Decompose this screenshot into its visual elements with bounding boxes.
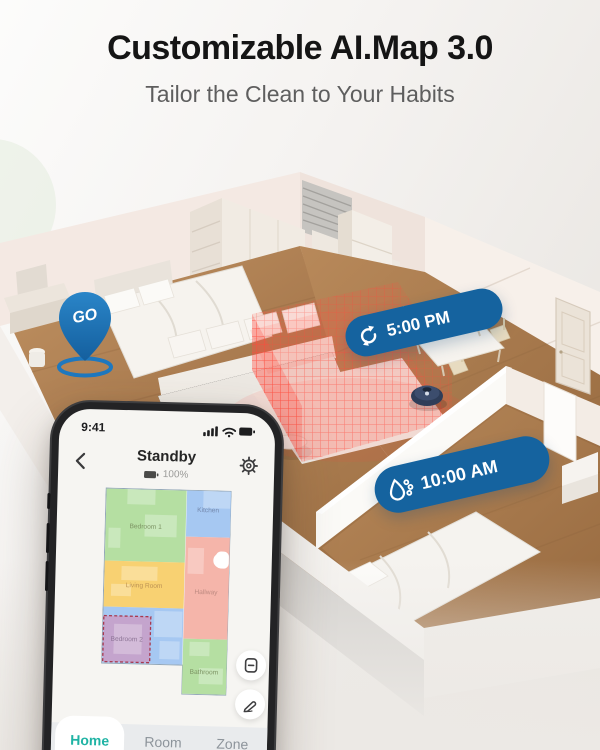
rotate-clockwise-icon [355,322,381,348]
map-label-hallway: Hallway [194,589,218,597]
page-subtitle: Tailor the Clean to Your Habits [0,81,600,108]
map-label-bedroom1: Bedroom 1 [129,523,162,531]
map-label-bedroom2: Bedroom 2 [111,636,144,644]
volume-down-button [45,561,49,591]
marketing-page: Customizable AI.Map 3.0 Tailor the Clean… [0,0,600,750]
status-icons [203,424,255,438]
page-title: Customizable AI.Map 3.0 [0,30,600,67]
volume-up-button [46,523,50,553]
phone-screen: 9:41 [50,408,276,750]
tab-home[interactable]: Home [54,715,125,750]
status-bar: 9:41 [59,408,276,439]
mop-badge-time: 10:00 AM [419,456,500,494]
battery-icon [239,427,255,435]
map-label-kitchen: Kitchen [197,507,220,515]
map-manage-icon [243,657,259,673]
cellular-signal-icon [203,426,218,436]
map-manage-button[interactable] [236,650,267,681]
tab-room[interactable]: Room [127,717,198,750]
phone-mockup: 9:41 [42,401,282,750]
floor-map: Bedroom 1 Kitchen Living Room Hallway Be… [100,488,231,701]
edit-icon [242,696,258,712]
tab-zone[interactable]: Zone [196,719,267,750]
map-pin-icon [56,288,114,378]
app-header: Standby 100% [58,445,275,495]
door [556,298,590,394]
go-location-pin: GO [56,288,114,378]
headline: Customizable AI.Map 3.0 Tailor the Clean… [0,30,600,108]
schedule-badge-time: 5:00 PM [385,307,452,341]
battery-icon [144,470,159,478]
wifi-icon [223,428,235,437]
tab-bar: Home Room Zone [50,715,268,750]
mute-switch [47,493,50,509]
gear-icon [239,456,258,475]
map-label-livingroom: Living Room [126,582,163,590]
water-drops-icon [385,473,416,504]
battery-percent: 100% [163,469,189,481]
map-label-bathroom: Bathroom [189,669,218,677]
settings-button[interactable] [235,452,263,483]
status-time: 9:41 [81,420,105,435]
map-edit-button[interactable] [235,689,266,720]
